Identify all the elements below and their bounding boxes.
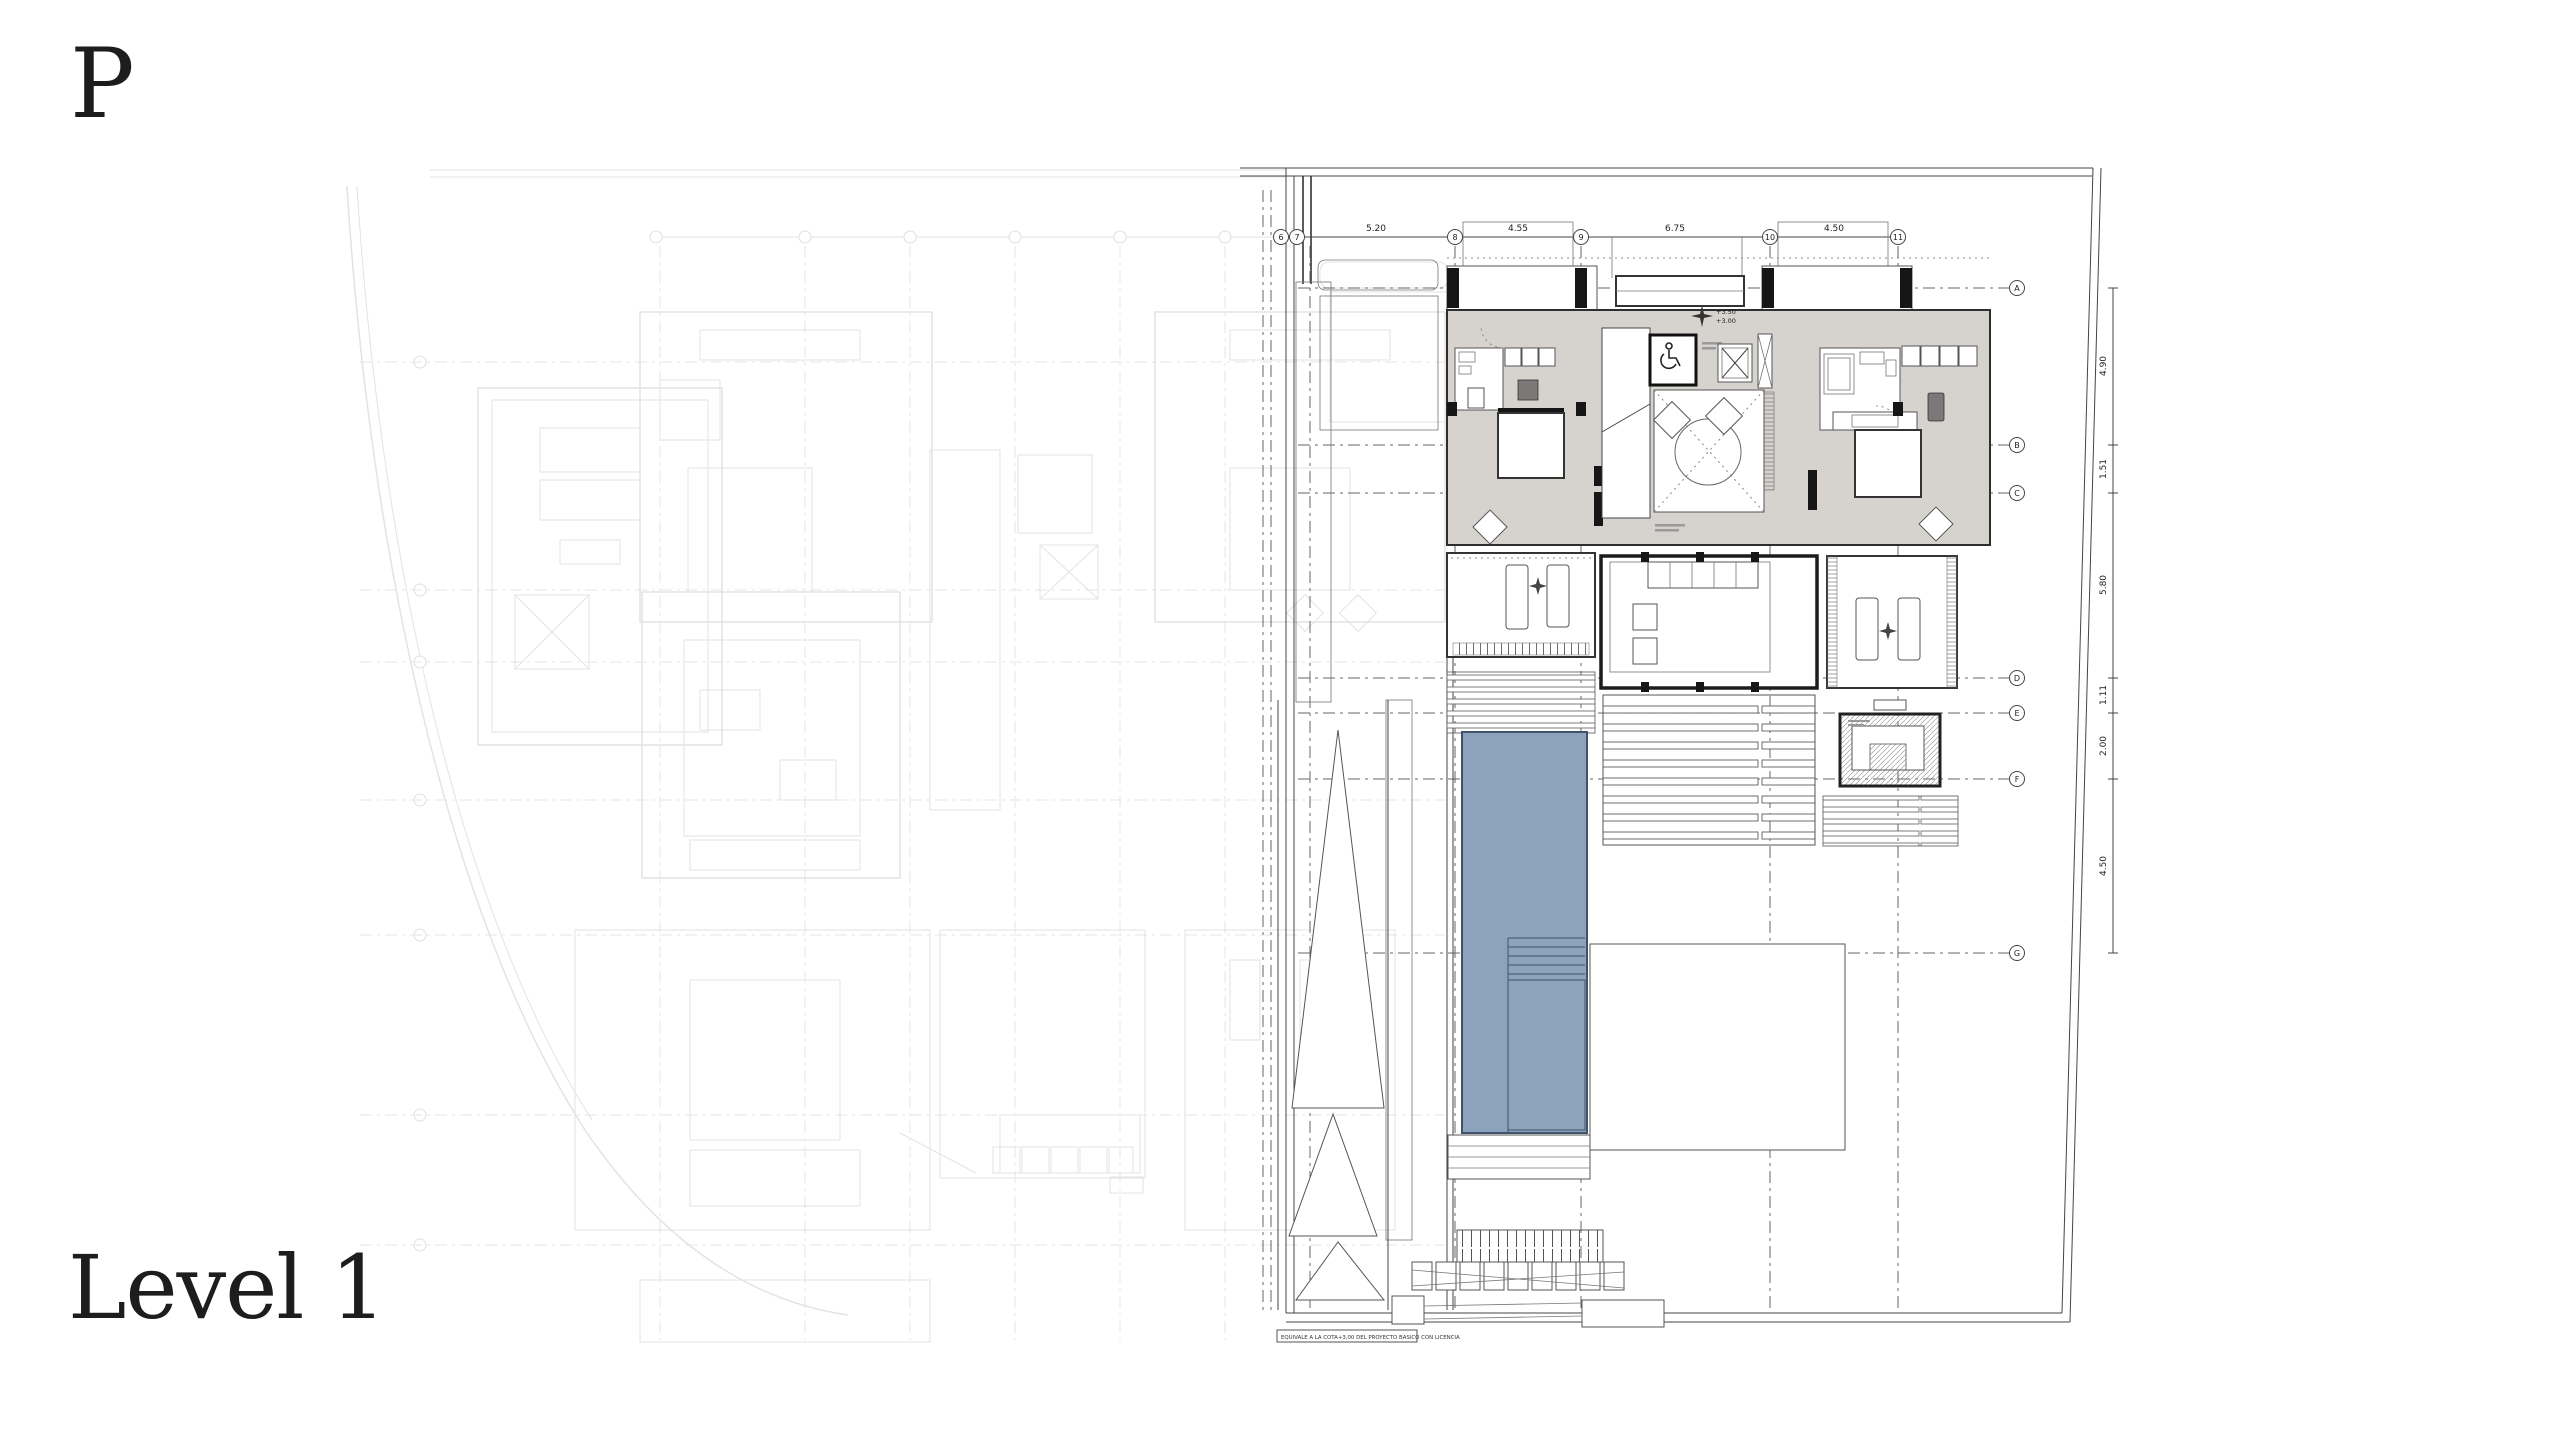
ghost-core <box>930 450 1098 810</box>
louver-deck-left <box>1447 672 1595 733</box>
grid-bubble: 11 <box>1893 233 1903 242</box>
grid-bubble: B <box>2014 441 2020 450</box>
dim-value: 6.75 <box>1665 224 1685 234</box>
dim-value: 4.90 <box>2099 356 2109 376</box>
license-note-text: EQUIVALE A LA COTA+3,00 DEL PROYECTO BAS… <box>1281 1335 1460 1341</box>
right-dimension-line: A B C D E F G 4.90 1.51 5.80 1.11 2.00 4… <box>2010 281 2119 961</box>
sun-lounger <box>1856 598 1878 660</box>
ramp-arrow <box>1292 730 1384 1108</box>
bed <box>1498 413 1564 478</box>
ghost-plan <box>347 170 1448 1342</box>
terrace-left <box>1447 553 1595 657</box>
dim-value: 5.20 <box>1366 224 1386 234</box>
dim-value: 1.11 <box>2099 685 2109 705</box>
ghost-living-room <box>642 592 900 878</box>
grid-bubble: C <box>2014 489 2020 498</box>
license-note: EQUIVALE A LA COTA+3,00 DEL PROYECTO BAS… <box>1277 1330 1460 1342</box>
grid-bubble: D <box>2014 674 2020 683</box>
planter-steps-row <box>1412 1262 1624 1290</box>
ottoman <box>1633 604 1657 630</box>
stair-treads-icon <box>1602 328 1650 518</box>
sun-lounger <box>1898 598 1920 660</box>
sofa <box>1648 562 1758 588</box>
level-value-upper: +3.50 <box>1716 308 1736 316</box>
sun-lounger <box>1506 565 1528 629</box>
ghost-terraces <box>575 930 1395 1342</box>
elevator-x-shaft-icon <box>1718 344 1752 382</box>
ghost-bedroom-1 <box>640 312 932 622</box>
side-yard <box>1278 260 1453 1310</box>
floor-plan-sheet: P Level 1 <box>0 0 2560 1440</box>
accessible-wc <box>1650 335 1696 385</box>
grid-bubble: G <box>2014 949 2020 958</box>
grid-bubble: 6 <box>1278 233 1283 242</box>
grid-bubble: 8 <box>1452 233 1457 242</box>
sun-lounger <box>1547 565 1569 627</box>
level-value-lower: +3.00 <box>1716 317 1736 325</box>
jacuzzi <box>1840 714 1940 786</box>
dim-value: 4.50 <box>2099 856 2109 876</box>
active-plan: 6 7 8 9 10 11 5.20 4.55 6.75 4.50 <box>1240 168 2118 1342</box>
grid-bubble: 9 <box>1578 233 1583 242</box>
swimming-pool <box>1462 732 1587 1133</box>
dim-value: 4.50 <box>1824 224 1844 234</box>
ghost-grid-bubbles <box>414 231 1231 1251</box>
ottoman <box>1633 638 1657 664</box>
grid-bubbles-right: A B C D E F G <box>2010 281 2025 961</box>
sitting-area <box>1654 390 1764 512</box>
dim-value: 1.51 <box>2099 459 2109 479</box>
bed <box>1855 430 1921 497</box>
ghost-media-room <box>478 388 722 745</box>
ghost-bedroom-2 <box>1155 262 1448 631</box>
central-core <box>1602 328 1774 532</box>
terrace-right <box>1823 556 1958 846</box>
ramp-arrow <box>1296 1242 1384 1300</box>
grid-bubble: F <box>2015 775 2020 784</box>
grid-bubble: E <box>2014 709 2019 718</box>
ghost-boundary-curve <box>347 186 848 1315</box>
dim-value: 2.00 <box>2099 736 2109 756</box>
grid-bubble: 10 <box>1765 233 1775 242</box>
dim-value: 5.80 <box>2099 575 2109 595</box>
ramp-arrow <box>1289 1114 1377 1236</box>
floor-plan-canvas: 6 7 8 9 10 11 5.20 4.55 6.75 4.50 <box>0 0 2560 1440</box>
grid-bubble: 7 <box>1294 233 1299 242</box>
louver-deck <box>1823 796 1958 846</box>
pergola-center <box>1603 695 1815 845</box>
fence <box>1457 1230 1603 1262</box>
grid-bubble: A <box>2014 284 2020 293</box>
living-room <box>1601 552 1817 692</box>
roof-louver-band <box>1447 258 1990 314</box>
dim-value: 4.55 <box>1508 224 1528 234</box>
